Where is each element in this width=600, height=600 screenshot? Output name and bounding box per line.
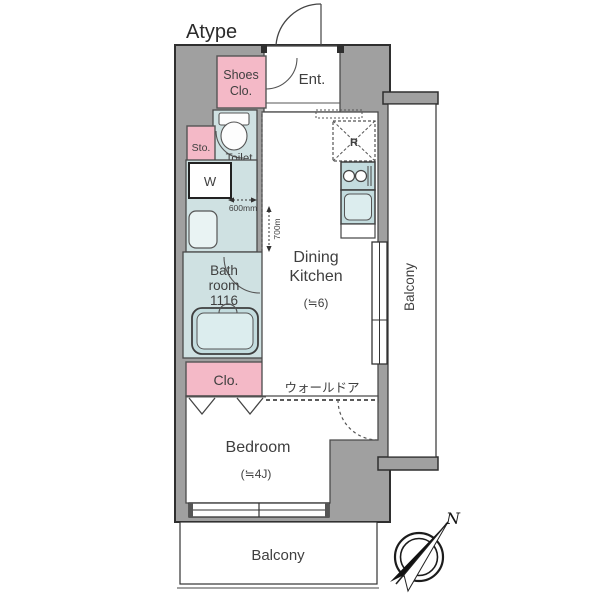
bedroom-label: Bedroom (226, 439, 291, 456)
wall-door-label: ウォールドア (284, 381, 359, 395)
window-right (372, 242, 387, 364)
fridge-space: R (333, 121, 375, 161)
sink-basin (345, 194, 372, 220)
dk-size-label: (≒6) (304, 296, 329, 310)
plan-title: Atype (186, 21, 237, 43)
balcony-bottom-label: Balcony (251, 547, 305, 564)
fridge-label: R (350, 137, 358, 149)
bathroom-label-1: Bath (210, 263, 238, 278)
window-bottom-end-left (189, 503, 193, 517)
shoes-closet (217, 56, 266, 108)
door-jamb-left (261, 44, 267, 53)
balcony-right-bottom-wall (378, 457, 438, 470)
kitchen-sink-icon (341, 190, 375, 224)
dk-label-2: Kitchen (289, 268, 342, 285)
washbasin-icon (189, 211, 217, 248)
bedroom-closet-label: Clo. (214, 372, 239, 388)
window-bottom (189, 503, 329, 517)
window-bottom-end-right (325, 503, 329, 517)
balcony-right-top-wall (383, 92, 438, 104)
burner-right (356, 171, 367, 182)
bedroom-size-label: (≒4J) (241, 467, 272, 481)
bathtub-inner (197, 313, 253, 349)
storage-label: Sto. (192, 142, 211, 154)
entrance-label: Ent. (299, 71, 326, 88)
door-jamb-right (337, 44, 344, 53)
dk-label-1: Dining (293, 249, 338, 266)
north-label: N (445, 509, 461, 528)
toilet-bowl-icon (221, 122, 247, 150)
kitchen-counter (341, 224, 375, 238)
burner-left (344, 171, 355, 182)
floor-plan-canvas: Atype Balcony Balcony Ent. Shoes Clo. To… (0, 0, 600, 600)
washer-label: W (204, 174, 217, 189)
dim-600-label: 600mm (229, 203, 257, 213)
bathroom-label-2: room (209, 278, 240, 293)
shoes-closet-label-1: Shoes (223, 68, 258, 82)
stove-icon (341, 162, 375, 190)
shoes-closet-label-2: Clo. (230, 84, 252, 98)
balcony-right-label: Balcony (402, 263, 417, 311)
dim-700-label: 700m (272, 218, 282, 239)
floor-plan-page: Atype Balcony Balcony Ent. Shoes Clo. To… (0, 0, 600, 600)
